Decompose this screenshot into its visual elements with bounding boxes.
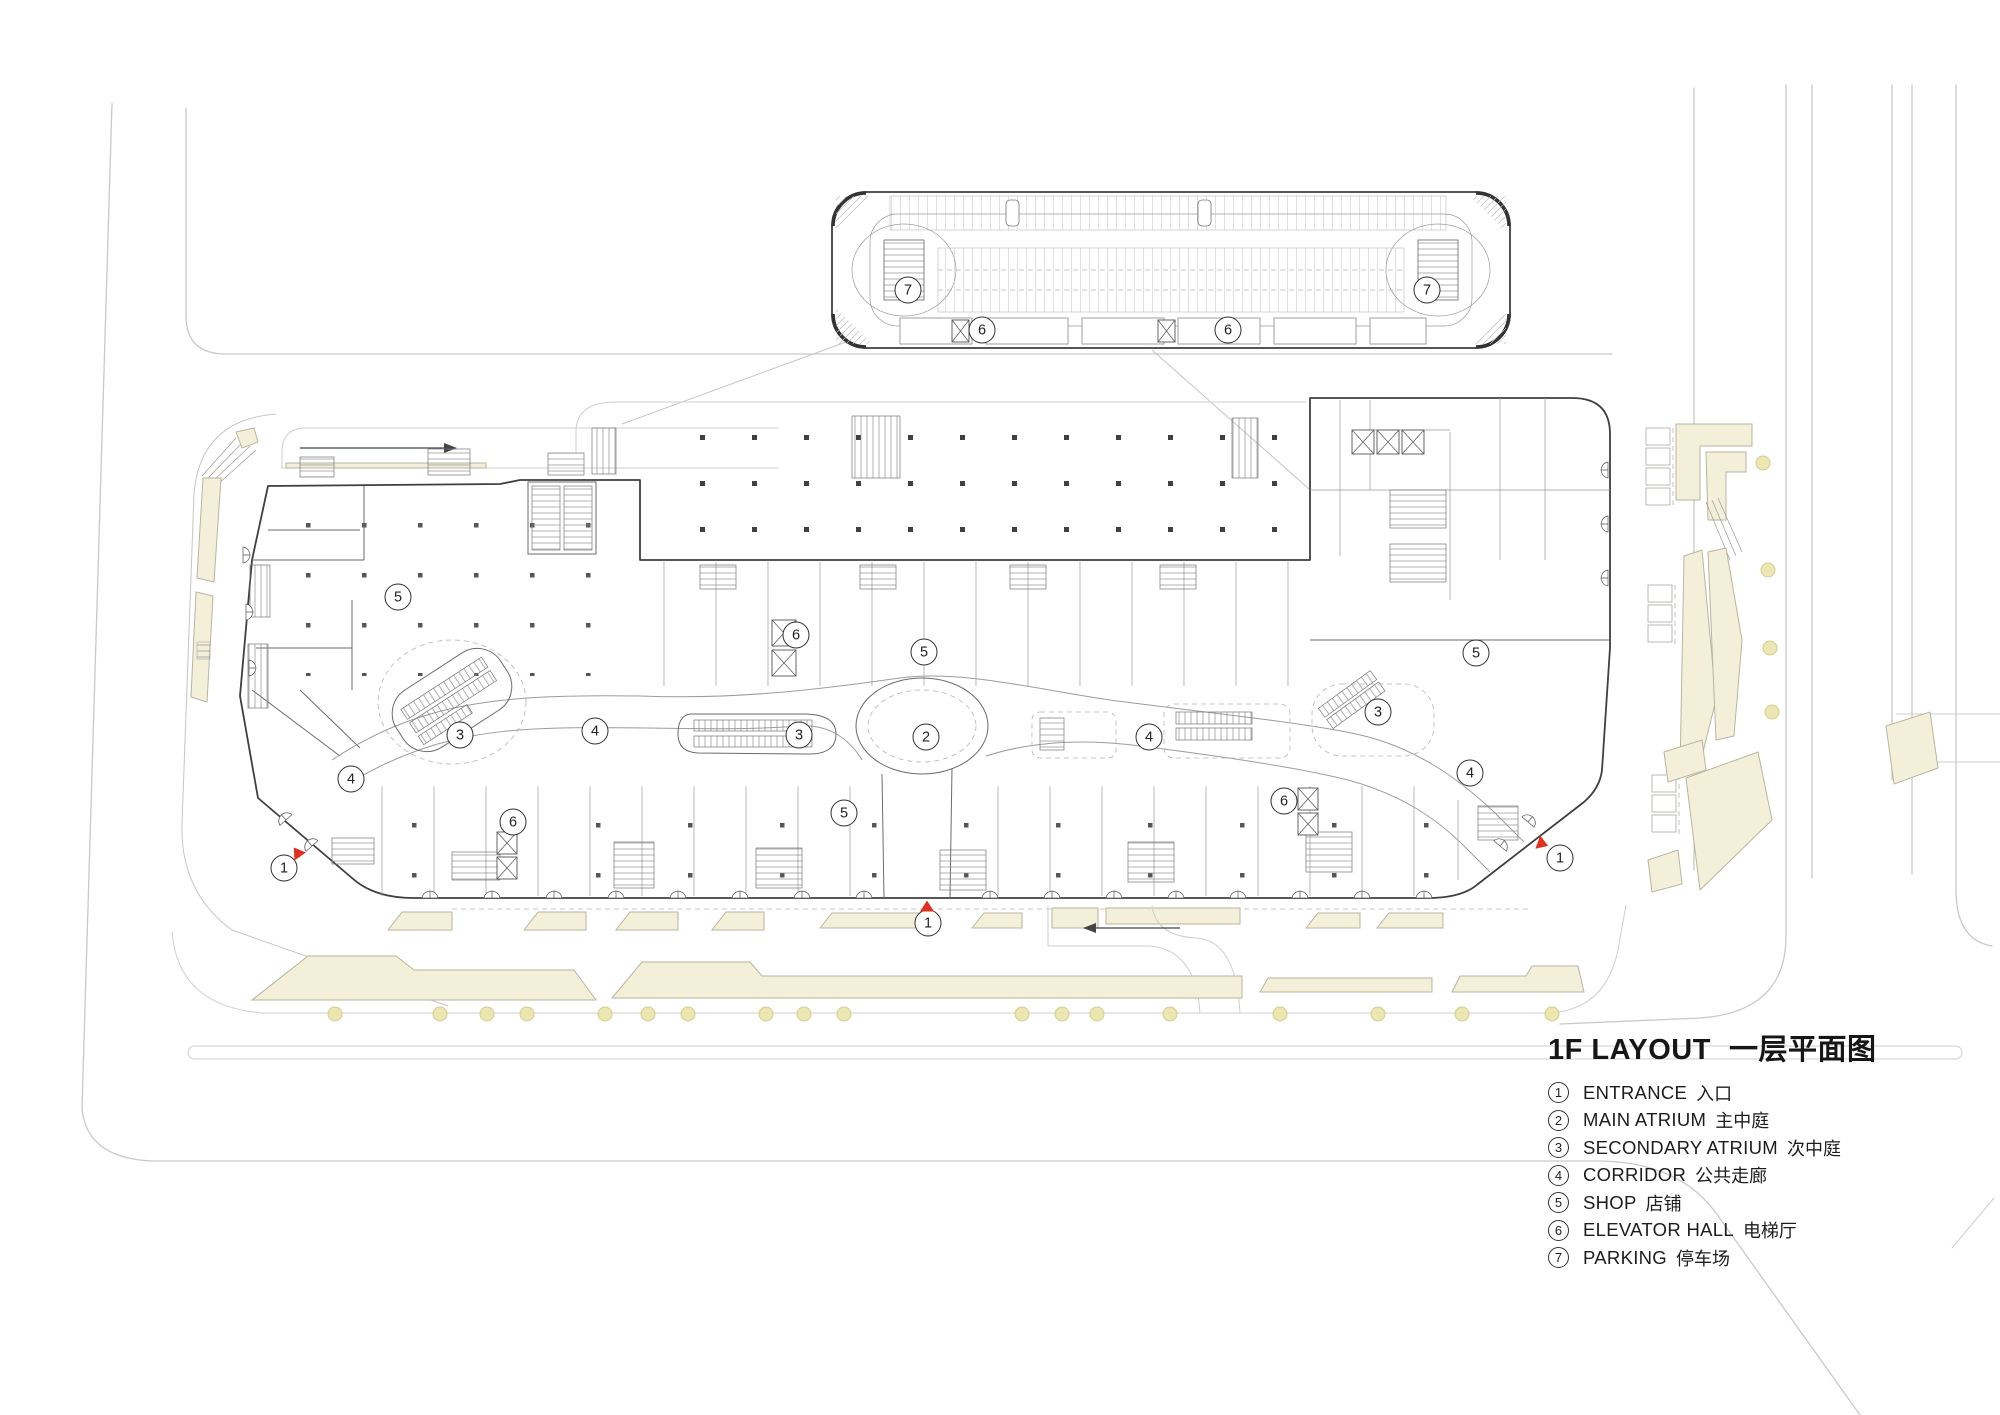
plan-marker-5: 5	[385, 584, 412, 611]
legend-label-en: SHOP	[1583, 1192, 1637, 1214]
tree-icon	[598, 1007, 613, 1022]
plan-marker-6: 6	[783, 622, 810, 649]
plan-marker-6: 6	[500, 809, 527, 836]
tree-icon	[1545, 1007, 1560, 1022]
legend-item-2: 2MAIN ATRIUM主中庭	[1548, 1107, 1876, 1135]
tree-icon	[1455, 1007, 1470, 1022]
legend-number-circle: 4	[1548, 1165, 1569, 1186]
legend-number-circle: 5	[1548, 1192, 1569, 1213]
legend-number-circle: 7	[1548, 1247, 1569, 1268]
tree-icon	[1756, 456, 1771, 471]
plan-marker-4: 4	[582, 718, 609, 745]
tree-icon	[837, 1007, 852, 1022]
tree-icon	[328, 1007, 343, 1022]
plan-marker-5: 5	[1463, 640, 1490, 667]
plan-marker-2: 2	[913, 724, 940, 751]
legend: 1F LAYOUT一层平面图 1ENTRANCE入口2MAIN ATRIUM主中…	[1548, 1026, 1876, 1272]
plan-marker-6: 6	[969, 317, 996, 344]
tree-icon	[1015, 1007, 1030, 1022]
tree-icon	[681, 1007, 696, 1022]
plan-marker-3: 3	[447, 722, 474, 749]
plan-marker-3: 3	[1365, 699, 1392, 726]
legend-number-circle: 1	[1548, 1082, 1569, 1103]
legend-item-5: 5SHOP店铺	[1548, 1189, 1876, 1217]
tree-icon	[1273, 1007, 1288, 1022]
drawing-title-en: 1F LAYOUT	[1548, 1034, 1711, 1066]
plan-marker-3: 3	[786, 722, 813, 749]
legend-label-en: SECONDARY ATRIUM	[1583, 1137, 1778, 1159]
tree-icon	[641, 1007, 656, 1022]
legend-item-4: 4CORRIDOR公共走廊	[1548, 1162, 1876, 1190]
plan-marker-6: 6	[1271, 788, 1298, 815]
tree-icon	[1163, 1007, 1178, 1022]
tree-icon	[1765, 705, 1780, 720]
tree-icon	[433, 1007, 448, 1022]
entrance-arrow-icon	[920, 901, 934, 912]
tree-icon	[1763, 641, 1778, 656]
legend-label-zh: 公共走廊	[1695, 1162, 1767, 1188]
legend-item-1: 1ENTRANCE入口	[1548, 1079, 1876, 1107]
tree-icon	[480, 1007, 495, 1022]
legend-label-en: ELEVATOR HALL	[1583, 1219, 1734, 1241]
legend-label-en: CORRIDOR	[1583, 1164, 1686, 1186]
plan-marker-4: 4	[1136, 724, 1163, 751]
plan-marker-7: 7	[1414, 277, 1441, 304]
plan-marker-4: 4	[338, 766, 365, 793]
legend-label-zh: 电梯厅	[1743, 1217, 1797, 1243]
legend-item-7: 7PARKING停车场	[1548, 1244, 1876, 1272]
plan-marker-7: 7	[895, 277, 922, 304]
legend-label-zh: 停车场	[1676, 1245, 1730, 1271]
legend-label-zh: 入口	[1696, 1080, 1732, 1106]
legend-label-en: PARKING	[1583, 1247, 1667, 1269]
tree-icon	[1090, 1007, 1105, 1022]
plan-marker-5: 5	[911, 639, 938, 666]
tree-icon	[1761, 563, 1776, 578]
plan-marker-5: 5	[831, 800, 858, 827]
plan-marker-1: 1	[915, 910, 942, 937]
drawing-title: 1F LAYOUT一层平面图	[1548, 1026, 1876, 1068]
tree-icon	[520, 1007, 535, 1022]
plan-marker-1: 1	[1547, 845, 1574, 872]
legend-label-zh: 主中庭	[1715, 1107, 1769, 1133]
legend-number-circle: 3	[1548, 1137, 1569, 1158]
plan-marker-6: 6	[1215, 317, 1242, 344]
legend-label-zh: 次中庭	[1787, 1135, 1841, 1161]
legend-label-zh: 店铺	[1646, 1190, 1682, 1216]
legend-label-en: MAIN ATRIUM	[1583, 1109, 1706, 1131]
tree-icon	[797, 1007, 812, 1022]
tree-icon	[1371, 1007, 1386, 1022]
legend-label-en: ENTRANCE	[1583, 1082, 1687, 1104]
drawing-title-zh: 一层平面图	[1729, 1034, 1877, 1066]
legend-item-3: 3SECONDARY ATRIUM次中庭	[1548, 1134, 1876, 1162]
plan-marker-4: 4	[1457, 760, 1484, 787]
tree-icon	[1055, 1007, 1070, 1022]
tree-icon	[759, 1007, 774, 1022]
legend-number-circle: 2	[1548, 1110, 1569, 1131]
legend-item-6: 6ELEVATOR HALL电梯厅	[1548, 1217, 1876, 1245]
legend-rows: 1ENTRANCE入口2MAIN ATRIUM主中庭3SECONDARY ATR…	[1548, 1079, 1876, 1272]
legend-number-circle: 6	[1548, 1220, 1569, 1241]
